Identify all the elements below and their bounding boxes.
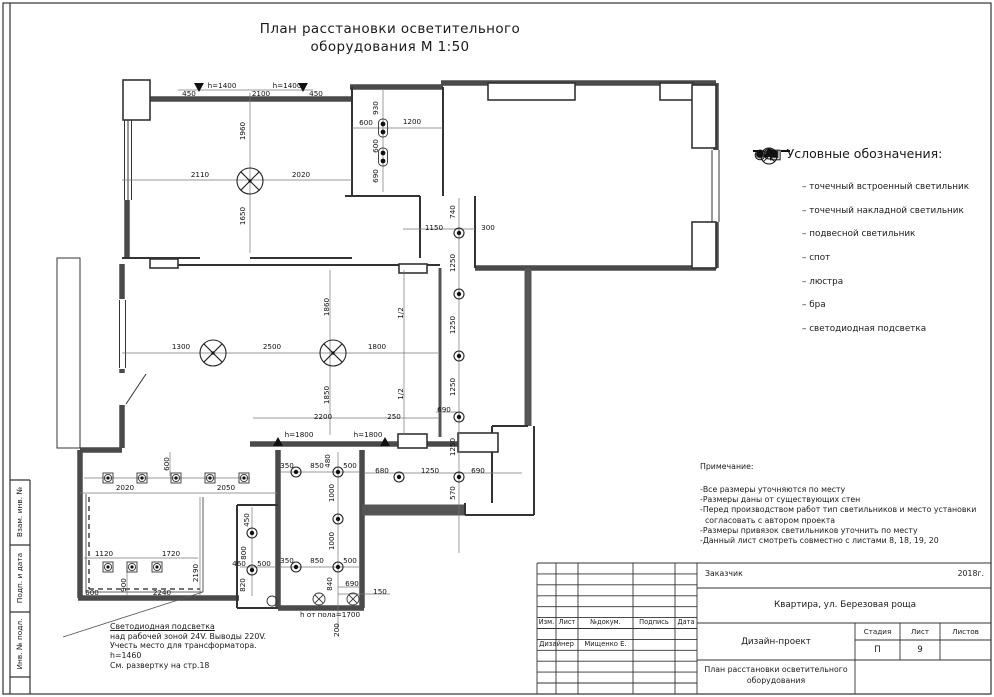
dim-label: 930 — [371, 101, 380, 115]
pendant-symbol — [313, 593, 325, 605]
dim-label: 1250 — [448, 437, 457, 456]
stamp-label: Подп. и дата — [11, 547, 29, 609]
dim-label: 1250 — [448, 377, 457, 396]
legend-item: – спот — [752, 246, 990, 270]
col-list: Лист — [556, 618, 578, 626]
dim-label: h=1400 — [208, 81, 237, 90]
stamp-label: Инв. № подл. — [11, 613, 29, 675]
spot-symbol — [127, 562, 137, 572]
dim-label: 690 — [471, 466, 485, 475]
dim-label: h=1400 — [273, 81, 302, 90]
dim-label: 1720 — [162, 549, 181, 558]
dim-label: h=1800 — [285, 430, 314, 439]
dim-label: 690 — [371, 169, 380, 183]
dim-label: 2110 — [191, 170, 210, 179]
page-frame — [3, 3, 991, 694]
spot-symbol — [152, 562, 162, 572]
dim-label: h от пола=1700 — [300, 610, 361, 619]
legend-label: – точечный накладной светильник — [802, 206, 964, 216]
legend-label: – спот — [802, 253, 830, 263]
designer-name: Мищенко Е. — [578, 640, 633, 648]
stage-value: П — [855, 645, 900, 655]
sheets-label: Листов — [940, 627, 991, 636]
led-note-line: Светодиодная подсветка — [110, 622, 266, 632]
note-line: -Данный лист смотреть совместно с листам… — [700, 536, 976, 546]
spot-symbol — [103, 473, 113, 483]
dim-label: 570 — [448, 486, 457, 500]
dim-label: 600 — [359, 118, 373, 127]
dim-label: 1000 — [327, 483, 336, 502]
drawing-sheet: 450h=14002100h=1400450196021102020165093… — [0, 0, 994, 697]
dim-label: 2020 — [116, 483, 135, 492]
col-date: Дата — [675, 618, 697, 626]
pendant-symbol — [347, 593, 359, 605]
dim-label: 900 — [119, 578, 128, 592]
col-izm: Изм. — [537, 618, 556, 626]
spot-symbol — [205, 473, 215, 483]
legend-item: – бра — [752, 293, 990, 317]
spot-symbol — [239, 473, 249, 483]
dim-label: 690 — [437, 405, 451, 414]
notes-block: Примечание: -Все размеры уточняются по м… — [700, 462, 976, 546]
led-note: Светодиодная подсветканад рабочей зоной … — [110, 622, 266, 671]
dim-label: 500 — [257, 559, 271, 568]
dim-label: 1300 — [172, 342, 191, 351]
dim-label: 2200 — [314, 412, 333, 421]
object-name: Квартира, ул. Березовая роща — [700, 600, 990, 610]
notes-lines: -Все размеры уточняются по месту-Размеры… — [700, 485, 976, 546]
dim-label: 500 — [343, 461, 357, 470]
note-line: -Размеры привязок светильников уточнить … — [700, 526, 976, 536]
dim-label: 820 — [238, 578, 247, 592]
dim-label: 1960 — [238, 121, 247, 140]
spot-symbol — [171, 473, 181, 483]
dim-label: 1150 — [425, 223, 444, 232]
led-note-line: См. развертку на стр.18 — [110, 661, 266, 671]
plan-drawing: 450h=14002100h=1400450196021102020165093… — [0, 0, 994, 697]
dim-label: 850 — [310, 556, 324, 565]
legend-label: – точечный встроенный светильник — [802, 182, 969, 192]
windows-layer — [57, 120, 723, 606]
dim-label: 1200 — [403, 117, 422, 126]
notes-title: Примечание: — [700, 462, 976, 471]
note-line: -Все размеры уточняются по месту — [700, 485, 976, 495]
dim-label: 200 — [332, 623, 341, 637]
dim-label: 1860 — [322, 297, 331, 316]
dim-label: 2500 — [263, 342, 282, 351]
legend-item: – светодиодная подсветка — [752, 317, 990, 341]
legend: Условные обозначения: – точечный встроен… — [752, 146, 990, 341]
page-title-line2: оборудования М 1:50 — [215, 38, 565, 56]
dim-label: 250 — [387, 412, 401, 421]
dim-label: 680 — [375, 466, 389, 475]
dim-label: 1/2 — [396, 307, 405, 319]
led-note-line: над рабочей зоной 24V. Выводы 220V. — [110, 632, 266, 642]
dim-label: h=1800 — [354, 430, 383, 439]
dim-label: 600 — [162, 457, 171, 471]
dim-label: 150 — [373, 587, 387, 596]
led-note-lines: Светодиодная подсветканад рабочей зоной … — [110, 622, 266, 671]
dim-label: 800 — [239, 546, 248, 560]
dim-label: 1000 — [327, 531, 336, 550]
surface-symbol — [394, 472, 404, 482]
dim-label: 740 — [448, 205, 457, 219]
spot-symbol — [137, 473, 147, 483]
dim-label: 450 — [242, 513, 251, 527]
legend-item: – люстра — [752, 270, 990, 294]
dim-label: 2020 — [292, 170, 311, 179]
col-sign: Подпись — [633, 618, 675, 626]
dim-label: 1850 — [322, 385, 331, 404]
legend-items: – точечный встроенный светильник– точечн… — [752, 175, 990, 341]
stage-label: Стадия — [855, 627, 900, 636]
balcony-door-leaf — [126, 374, 146, 404]
page-title: План расстановки осветительного оборудов… — [215, 20, 565, 56]
legend-item: – точечный встроенный светильник — [752, 175, 990, 199]
year-label: 2018г. — [900, 569, 984, 578]
legend-item: – подвесной светильник — [752, 222, 990, 246]
sheet-label: Лист — [900, 627, 940, 636]
dim-label: 1/2 — [396, 388, 405, 400]
kitchen-counter-line — [86, 494, 203, 592]
dim-label: 480 — [323, 454, 332, 468]
legend-label: – люстра — [802, 277, 843, 287]
legend-label: – бра — [802, 300, 826, 310]
col-doc: №докум. — [578, 618, 633, 626]
legend-label: – светодиодная подсветка — [802, 324, 926, 334]
dim-label: 2100 — [252, 89, 271, 98]
led-strip-dashed — [89, 497, 200, 589]
dim-label: 2240 — [153, 588, 172, 597]
stamp-label: Взам. инв. № — [11, 481, 29, 543]
dim-label: 840 — [325, 577, 334, 591]
dim-label: 1800 — [368, 342, 387, 351]
dim-label: 460 — [232, 559, 246, 568]
led-note-line: Учесть место для трансформатора. — [110, 641, 266, 651]
dim-label: 300 — [481, 223, 495, 232]
dim-label: 2190 — [191, 563, 200, 582]
dim-label: 450 — [182, 89, 196, 98]
dim-label: 1250 — [448, 315, 457, 334]
customer-label: Заказчик — [705, 569, 743, 578]
note-line: согласовать с автором проекта — [700, 516, 976, 526]
sheet-value: 9 — [900, 645, 940, 655]
led-note-line: h=1460 — [110, 651, 266, 661]
legend-item: – точечный накладной светильник — [752, 199, 990, 223]
dim-label: 500 — [343, 556, 357, 565]
drawing-title: План расстановки осветительного оборудов… — [699, 665, 853, 686]
note-line: -Размеры даны от существующих стен — [700, 495, 976, 505]
dim-label: 1250 — [448, 253, 457, 272]
dim-label: 690 — [345, 579, 359, 588]
designer-role: Дизайнер — [535, 640, 578, 648]
dim-label: 1650 — [238, 206, 247, 225]
legend-label: – подвесной светильник — [802, 229, 915, 239]
dim-label: 1250 — [421, 466, 440, 475]
dim-labels: 450h=14002100h=1400450196021102020165093… — [85, 81, 495, 637]
light-fixtures — [103, 83, 464, 605]
project-name: Дизайн-проект — [697, 637, 855, 647]
dim-label: 450 — [309, 89, 323, 98]
dim-label: 1120 — [95, 549, 114, 558]
dim-label: 2050 — [217, 483, 236, 492]
spot-symbol — [103, 562, 113, 572]
note-line: -Перед производством работ тип светильни… — [700, 505, 976, 515]
page-title-line1: План расстановки осветительного — [215, 20, 565, 38]
dim-label: 600 — [85, 588, 99, 597]
